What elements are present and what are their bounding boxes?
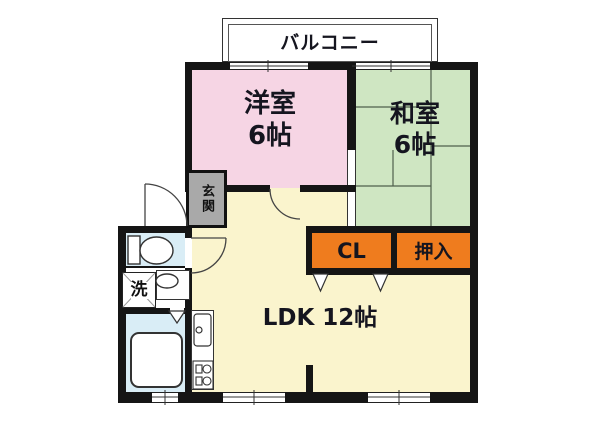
- wall-between-rooms: [347, 62, 356, 150]
- window-bath: [152, 392, 178, 403]
- wall-service-top: [118, 226, 192, 233]
- wall-top-center: [308, 62, 352, 70]
- wall-western-bottom-right: [300, 185, 356, 192]
- japanese-room-size: 6帖: [360, 129, 470, 160]
- washbasin-box: [156, 270, 190, 300]
- oshiire-box: 押入: [397, 233, 470, 268]
- laundry-label: 洗: [131, 282, 148, 299]
- bathroom-area: [126, 313, 185, 393]
- western-room-name: 洋室: [200, 88, 340, 120]
- kitchen-unit: [191, 310, 214, 390]
- window-ldk-left: [223, 392, 285, 403]
- window-ldk-right: [368, 392, 430, 403]
- wall-closet-top: [306, 226, 474, 233]
- ldk-label: LDK 12帖: [230, 298, 410, 332]
- wall-bottom-4: [430, 392, 478, 403]
- entrance-box: 玄関: [186, 170, 227, 228]
- window-japanese-room: [352, 62, 430, 70]
- oshiire-label: 押入: [414, 237, 452, 264]
- closet-cl-box: CL: [312, 233, 391, 268]
- floor-plan: CL 押入 玄関 洗: [0, 0, 600, 424]
- laundry-box: 洗: [122, 272, 156, 308]
- toilet-door-gap: [185, 238, 192, 268]
- entrance-label: 玄関: [197, 184, 216, 214]
- wall-bottom-2: [178, 392, 223, 403]
- wall-ldk-stub: [306, 365, 313, 392]
- wall-bottom-3: [285, 392, 368, 403]
- wall-toilet-washroom-divider: [126, 266, 185, 268]
- toilet-room-area: [126, 233, 185, 268]
- western-room-size: 6帖: [200, 120, 340, 152]
- window-western-room: [230, 62, 308, 70]
- wall-bottom-1: [118, 392, 152, 403]
- balcony-label: バルコニー: [240, 28, 420, 55]
- wall-closet-bottom: [306, 268, 474, 275]
- entrance-door-swing: [145, 184, 187, 226]
- wall-washroom-bath-left: [118, 308, 170, 314]
- western-room-label: 洋室 6帖: [200, 88, 340, 152]
- wall-outer-left: [118, 226, 126, 403]
- japanese-room-name: 和室: [360, 98, 470, 129]
- closet-cl-label: CL: [337, 239, 366, 263]
- japanese-room-label: 和室 6帖: [360, 98, 470, 160]
